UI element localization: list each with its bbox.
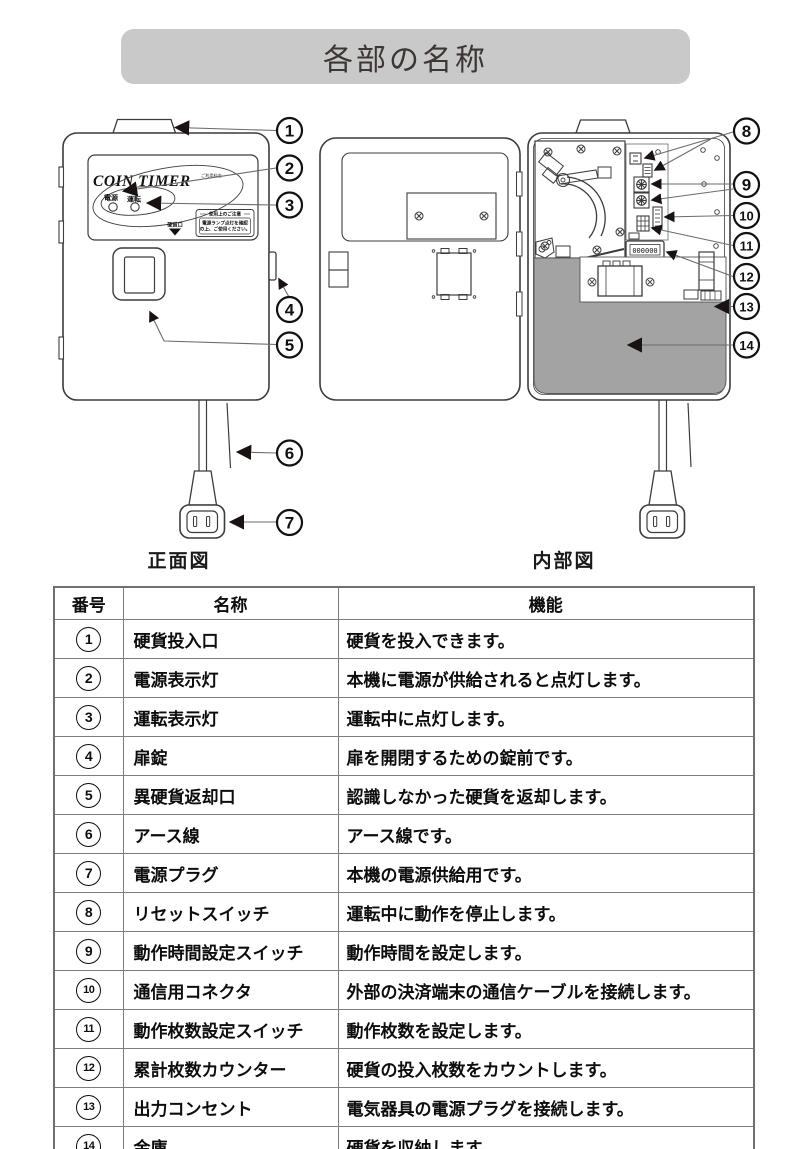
power-led-label: 電源: [104, 193, 118, 202]
circled-number: 2: [76, 666, 101, 691]
cell-part-name: アース線: [123, 815, 338, 854]
cell-function: 硬貨を収納します。: [338, 1127, 754, 1149]
cell-number: 1: [54, 620, 123, 659]
svg-text:1: 1: [285, 122, 294, 141]
coin-mechanism: [535, 141, 629, 267]
internal-view-drawing: 000000: [320, 120, 730, 538]
earth-wire: [227, 403, 231, 468]
brand-logo: COIN TIMER: [93, 173, 191, 190]
header-number: 番号: [54, 587, 123, 620]
svg-text:8: 8: [742, 122, 751, 141]
cell-part-name: 出力コンセント: [123, 1088, 338, 1127]
cell-part-name: 通信用コネクタ: [123, 971, 338, 1010]
callout-2: 2: [277, 156, 302, 181]
svg-text:3: 3: [285, 196, 294, 215]
circled-number: 10: [76, 978, 101, 1003]
circled-number: 1: [76, 627, 101, 652]
cell-function: 本機の電源供給用です。: [338, 854, 754, 893]
cell-part-name: 累計枚数カウンター: [123, 1049, 338, 1088]
cell-number: 9: [54, 932, 123, 971]
svg-text:12: 12: [739, 270, 753, 285]
cell-function: 電気器具の電源プラグを接続します。: [338, 1088, 754, 1127]
circled-number: 8: [76, 900, 101, 925]
table-row: 13出力コンセント電気器具の電源プラグを接続します。: [54, 1088, 754, 1127]
svg-text:11: 11: [740, 239, 754, 254]
svg-text:4: 4: [285, 301, 295, 320]
front-view-drawing: COIN TIMER ご利用料金 電源 運転 使用上のご注意 電源ランプ点灯を確…: [59, 120, 276, 539]
header-function: 機能: [338, 587, 754, 620]
earth-wire-internal: [688, 403, 691, 467]
table-row: 7電源プラグ本機の電源供給用です。: [54, 854, 754, 893]
svg-text:5: 5: [285, 336, 294, 355]
table-row: 9動作時間設定スイッチ動作時間を設定します。: [54, 932, 754, 971]
svg-text:14: 14: [739, 338, 754, 353]
circled-number: 4: [76, 744, 101, 769]
table-row: 4扉錠扉を開閉するための錠前です。: [54, 737, 754, 776]
cell-function: 運転中に動作を停止します。: [338, 893, 754, 932]
table-row: 5異硬貨返却口認識しなかった硬貨を返却します。: [54, 776, 754, 815]
cell-function: 扉を開閉するための錠前です。: [338, 737, 754, 776]
header-name: 名称: [123, 587, 338, 620]
power-bay: [580, 252, 726, 302]
run-led-label: 運転: [127, 195, 141, 204]
cell-part-name: 硬貨投入口: [123, 620, 338, 659]
cell-number: 10: [54, 971, 123, 1010]
svg-text:10: 10: [739, 209, 753, 224]
notice-body-2: の上、ご使用ください。: [200, 226, 251, 233]
cell-number: 13: [54, 1088, 123, 1127]
svg-text:6: 6: [285, 444, 294, 463]
callout-10: 10: [734, 203, 759, 228]
cell-function: 動作枚数を設定します。: [338, 1010, 754, 1049]
opened-door: [320, 138, 520, 400]
cell-function: 運転中に点灯します。: [338, 698, 754, 737]
callout-8: 8: [734, 119, 759, 144]
cell-part-name: 電源表示灯: [123, 659, 338, 698]
cell-function: 硬貨の投入枚数をカウントします。: [338, 1049, 754, 1088]
coin-slot-label: 硬貨口: [167, 221, 183, 229]
callout-5: 5: [277, 333, 302, 358]
circled-number: 3: [76, 705, 101, 730]
table-row: 3運転表示灯運転中に点灯します。: [54, 698, 754, 737]
cell-function: 本機に電源が供給されると点灯します。: [338, 659, 754, 698]
cell-number: 3: [54, 698, 123, 737]
svg-text:2: 2: [285, 159, 294, 178]
cell-number: 11: [54, 1010, 123, 1049]
cell-part-name: リセットスイッチ: [123, 893, 338, 932]
circled-number: 11: [76, 1017, 101, 1042]
cell-number: 4: [54, 737, 123, 776]
coin-slot: [113, 120, 176, 134]
cell-part-name: 金庫: [123, 1127, 338, 1149]
cell-function: 動作時間を設定します。: [338, 932, 754, 971]
cell-function: 認識しなかった硬貨を返却します。: [338, 776, 754, 815]
manual-page: 各部の名称: [0, 0, 810, 1149]
cell-function: アース線です。: [338, 815, 754, 854]
circled-number: 6: [76, 822, 101, 847]
callout-14: 14: [734, 333, 759, 358]
cell-number: 7: [54, 854, 123, 893]
circled-number: 14: [76, 1134, 101, 1149]
cell-number: 8: [54, 893, 123, 932]
cell-part-name: 異硬貨返却口: [123, 776, 338, 815]
cell-part-name: 動作時間設定スイッチ: [123, 932, 338, 971]
cell-number: 6: [54, 815, 123, 854]
callout-9: 9: [734, 172, 759, 197]
cell-function: 外部の決済端末の通信ケーブルを接続します。: [338, 971, 754, 1010]
callout-1: 1: [277, 118, 302, 143]
cell-number: 14: [54, 1127, 123, 1149]
table-row: 12累計枚数カウンター硬貨の投入枚数をカウントします。: [54, 1049, 754, 1088]
table-row: 10通信用コネクタ外部の決済端末の通信ケーブルを接続します。: [54, 971, 754, 1010]
cell-number: 12: [54, 1049, 123, 1088]
circled-number: 7: [76, 861, 101, 886]
cell-number: 5: [54, 776, 123, 815]
callout-4: 4: [277, 297, 302, 322]
callout-11: 11: [734, 233, 759, 258]
cell-part-name: 運転表示灯: [123, 698, 338, 737]
circled-number: 12: [76, 1056, 101, 1081]
callout-3: 3: [277, 193, 302, 218]
cell-part-name: 電源プラグ: [123, 854, 338, 893]
callout-7: 7: [277, 510, 302, 535]
notice-title: 使用上のご注意: [208, 211, 242, 218]
table-row: 8リセットスイッチ運転中に動作を停止します。: [54, 893, 754, 932]
front-view-caption: 正面図: [134, 546, 224, 573]
door-lock: [269, 252, 276, 280]
circled-number: 13: [76, 1095, 101, 1120]
cell-part-name: 扉錠: [123, 737, 338, 776]
circled-number: 9: [76, 939, 101, 964]
cell-part-name: 動作枚数設定スイッチ: [123, 1010, 338, 1049]
svg-text:9: 9: [742, 176, 751, 195]
table-row: 1硬貨投入口硬貨を投入できます。: [54, 620, 754, 659]
parts-table-body: 1硬貨投入口硬貨を投入できます。2電源表示灯本機に電源が供給されると点灯します。…: [54, 620, 754, 1149]
svg-text:13: 13: [739, 300, 753, 315]
circled-number: 5: [76, 783, 101, 808]
table-header-row: 番号 名称 機能: [54, 587, 754, 620]
callout-13: 13: [734, 294, 759, 319]
callout-12: 12: [734, 264, 759, 289]
cell-function: 硬貨を投入できます。: [338, 620, 754, 659]
parts-diagram: COIN TIMER ご利用料金 電源 運転 使用上のご注意 電源ランプ点灯を確…: [0, 0, 810, 580]
cell-number: 2: [54, 659, 123, 698]
internal-view-caption: 内部図: [519, 546, 609, 573]
table-row: 6アース線アース線です。: [54, 815, 754, 854]
counter-digits: 000000: [632, 247, 657, 255]
callout-6: 6: [277, 441, 302, 466]
table-row: 2電源表示灯本機に電源が供給されると点灯します。: [54, 659, 754, 698]
svg-text:7: 7: [285, 514, 294, 533]
table-row: 11動作枚数設定スイッチ動作枚数を設定します。: [54, 1010, 754, 1049]
parts-table: 番号 名称 機能 1硬貨投入口硬貨を投入できます。2電源表示灯本機に電源が供給さ…: [53, 586, 755, 1149]
table-row: 14金庫硬貨を収納します。: [54, 1127, 754, 1149]
notice-body-1: 電源ランプ点灯を確認: [202, 220, 248, 227]
coin-counter: 000000: [626, 241, 664, 258]
